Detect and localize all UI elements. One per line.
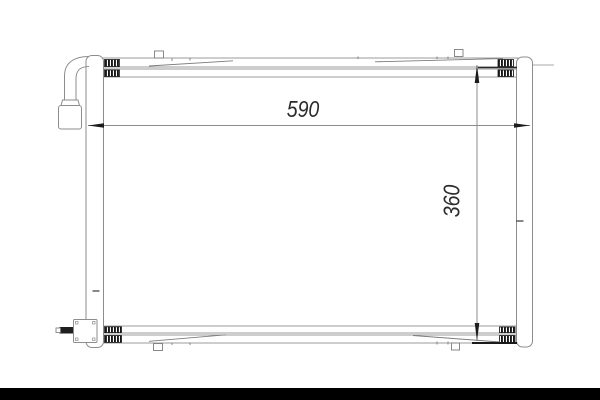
width-dimension-label: 590 (287, 97, 320, 123)
footer-watermark-bar (0, 388, 600, 400)
stub-pipe (60, 327, 74, 334)
top-left-clip (155, 51, 164, 58)
fitting-body (59, 106, 82, 130)
fitting-neck (61, 100, 80, 106)
condenser-technical-drawing: 590 360 (0, 0, 600, 388)
product-image: 590 360 (0, 0, 600, 400)
height-dimension: 360 (439, 65, 479, 341)
hatch-top-right-2 (498, 70, 514, 77)
hatch-top-left-1 (105, 60, 120, 67)
bottom-right-clip (452, 343, 460, 350)
height-dimension-label: 360 (439, 185, 465, 218)
elbow-outer-edge (65, 57, 90, 101)
top-tube-2 (103, 69, 518, 77)
hatch-top-right-1 (498, 60, 514, 67)
outlet-connector (56, 320, 97, 343)
bottom-left-clip (154, 344, 163, 351)
top-right-clip (455, 50, 464, 57)
bottom-header-tubes (103, 326, 518, 343)
left-tank (86, 56, 104, 348)
hatch-bottom-left-2 (105, 336, 122, 343)
tank-weld-marks (93, 221, 524, 291)
hatch-top-left-2 (105, 70, 120, 77)
stub-pipe-tip (56, 328, 61, 333)
width-dimension: 590 (88, 97, 530, 128)
hatch-bottom-left-1 (105, 327, 122, 333)
inlet-elbow-pipe (59, 57, 90, 130)
top-header-tubes (103, 58, 518, 77)
hatch-bottom-right-2 (500, 336, 516, 343)
right-tank (517, 57, 533, 347)
hatch-bottom-right-1 (500, 327, 516, 333)
connector-block (74, 320, 98, 343)
bottom-tube-1 (103, 326, 518, 333)
